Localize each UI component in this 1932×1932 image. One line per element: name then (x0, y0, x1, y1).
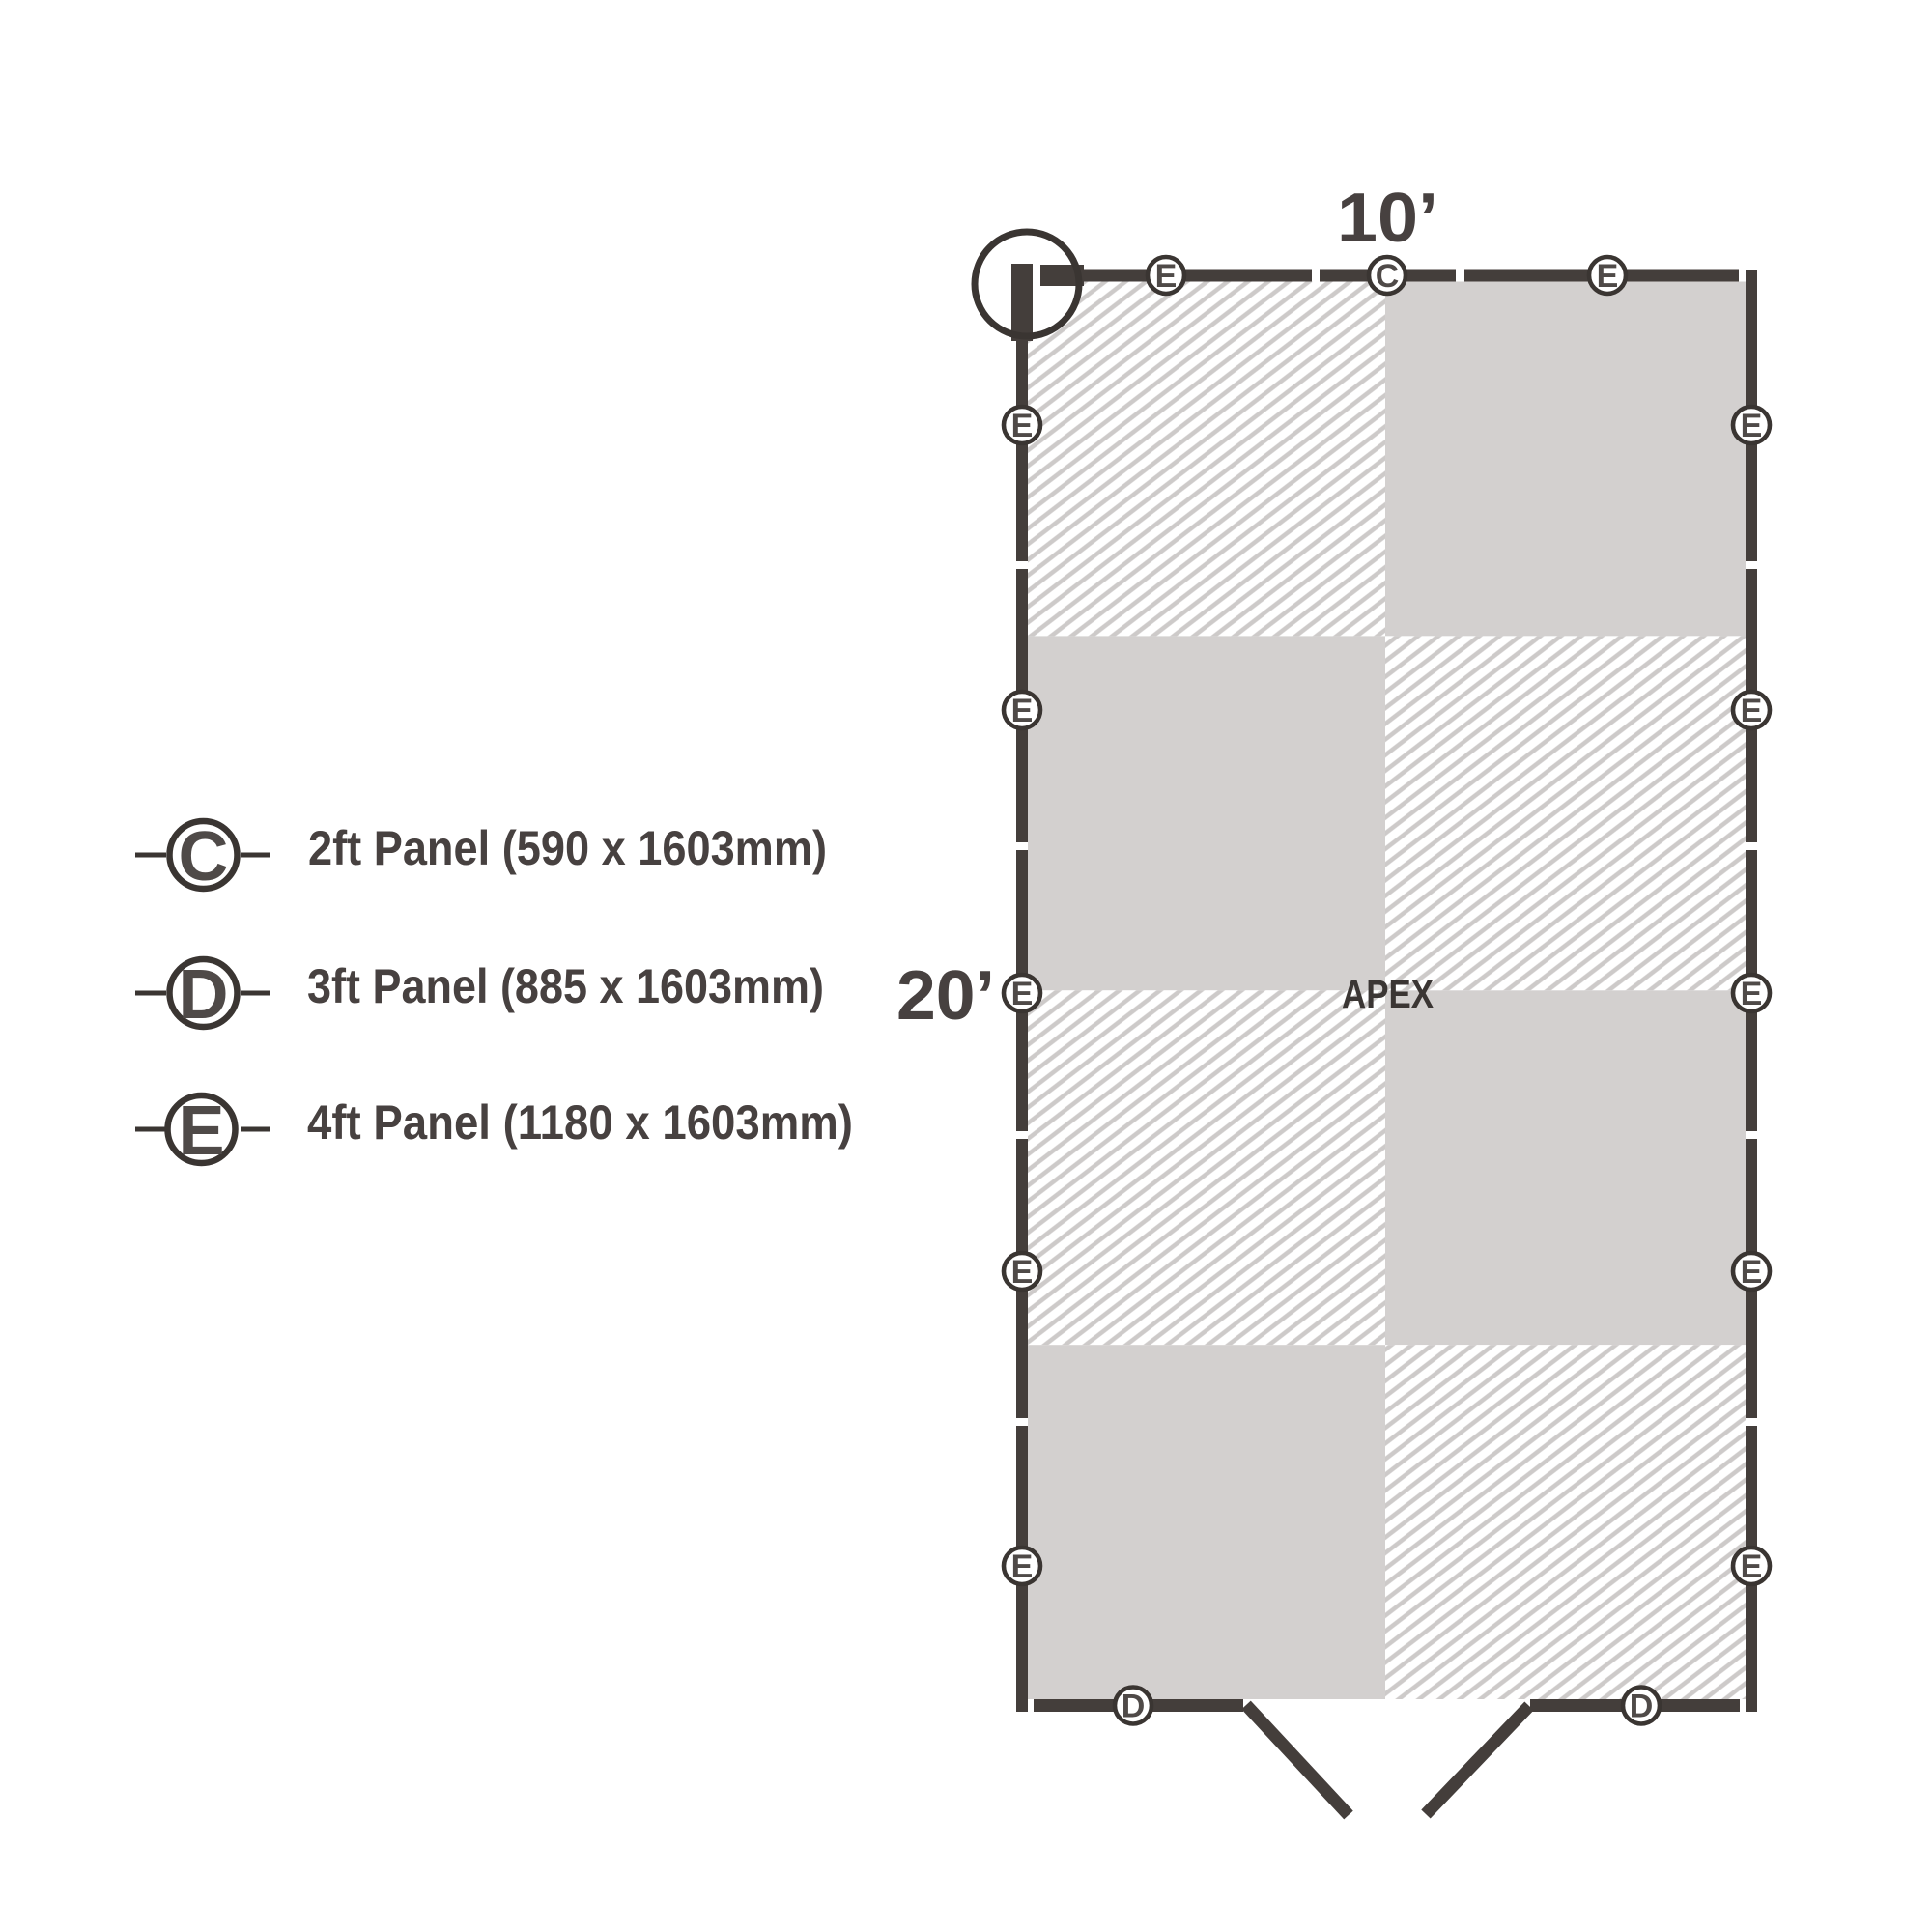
svg-text:D: D (1122, 1689, 1146, 1725)
svg-text:E: E (178, 1093, 224, 1170)
svg-text:D: D (1630, 1689, 1654, 1725)
svg-text:E: E (1011, 976, 1034, 1012)
svg-text:E: E (1741, 408, 1763, 444)
svg-text:E: E (1597, 258, 1619, 295)
svg-text:E: E (1011, 693, 1034, 729)
svg-text:C: C (1376, 258, 1400, 295)
svg-text:4ft Panel (1180 x 1603mm): 4ft Panel (1180 x 1603mm) (307, 1095, 853, 1150)
svg-text:3ft Panel (885 x 1603mm): 3ft Panel (885 x 1603mm) (307, 959, 824, 1013)
svg-text:E: E (1741, 1254, 1763, 1291)
svg-text:E: E (1741, 976, 1763, 1012)
svg-text:E: E (1011, 1548, 1034, 1585)
svg-text:APEX: APEX (1342, 972, 1434, 1016)
svg-text:C: C (179, 818, 229, 895)
svg-text:E: E (1741, 693, 1763, 729)
svg-text:E: E (1011, 408, 1034, 444)
svg-text:E: E (1011, 1254, 1034, 1291)
svg-text:E: E (1155, 258, 1178, 295)
svg-text:E: E (1741, 1548, 1763, 1585)
svg-text:10’: 10’ (1337, 180, 1438, 257)
svg-text:20’: 20’ (896, 957, 995, 1035)
svg-text:2ft Panel (590 x 1603mm): 2ft Panel (590 x 1603mm) (308, 821, 827, 875)
svg-text:D: D (179, 956, 229, 1034)
